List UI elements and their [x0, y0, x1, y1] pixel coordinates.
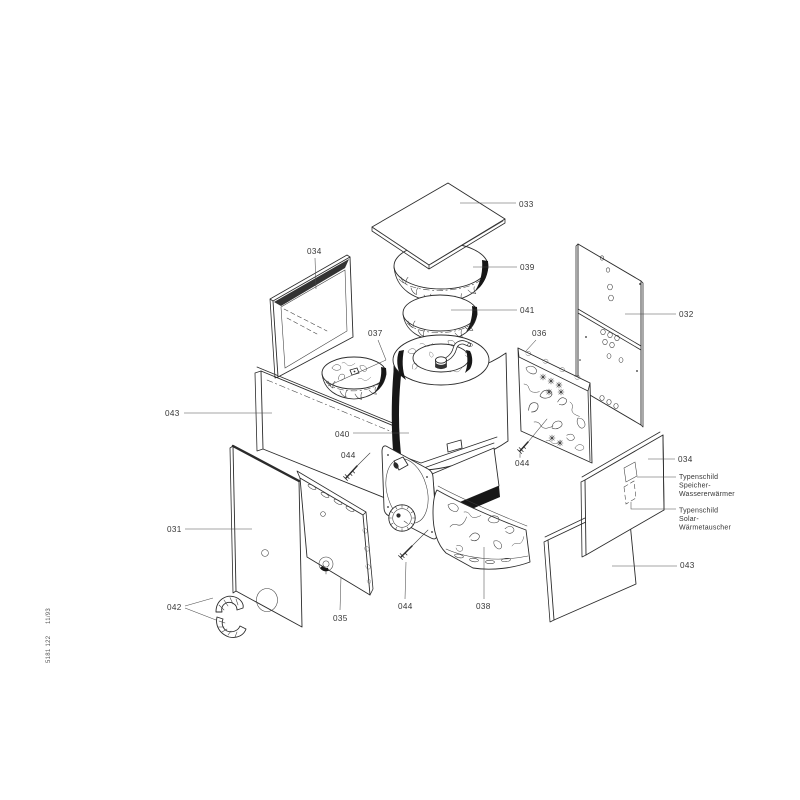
annotation-storage-line3: Wassererwärmer — [679, 491, 735, 498]
screw-044-bottom — [399, 530, 429, 560]
part-label-042: 042 — [167, 603, 182, 612]
part-label-035: 035 — [333, 614, 348, 623]
part-label-043-left: 043 — [165, 409, 180, 418]
part-label-031: 031 — [167, 525, 182, 534]
annotation-solar-line3: Wärmetauscher — [679, 525, 731, 532]
part-label-033: 033 — [519, 200, 534, 209]
annotation-solar-line2: Solar- — [679, 516, 699, 523]
annotation-solar-line1: Typenschild — [679, 508, 718, 515]
footer-doc-number: 5181 122 — [46, 635, 52, 663]
annotation-storage-line1: Typenschild — [679, 474, 718, 481]
part-label-039: 039 — [520, 263, 535, 272]
part-031-front-panel — [230, 446, 302, 627]
part-label-034-right: 034 — [678, 455, 693, 464]
part-label-032: 032 — [679, 310, 694, 319]
exploded-view-drawing: 033 034 039 041 037 036 032 043 040 044 … — [0, 0, 800, 800]
part-label-034-front: 034 — [307, 247, 322, 256]
part-label-044-left: 044 — [341, 451, 356, 460]
tank-hub — [436, 357, 447, 363]
part-035-insulation-panel — [297, 471, 373, 595]
part-label-036: 036 — [532, 329, 547, 338]
part-label-044-right: 044 — [515, 459, 530, 468]
flange-cap — [389, 505, 416, 532]
part-042-pipe-shells — [216, 596, 246, 637]
footer-date-code: 11/93 — [46, 608, 52, 624]
part-label-043-right: 043 — [680, 561, 695, 570]
nameplate-annotations: Typenschild Speicher- Wassererwärmer Typ… — [679, 474, 735, 532]
part-label-040: 040 — [335, 430, 350, 439]
part-label-041: 041 — [520, 306, 535, 315]
part-label-038: 038 — [476, 602, 491, 611]
part-037-insulation-disc — [322, 357, 386, 400]
part-label-044-bottom: 044 — [398, 602, 413, 611]
part-label-037: 037 — [368, 329, 383, 338]
footer-doc-codes: 11/93 5181 122 — [46, 608, 52, 663]
annotation-storage-line2: Speicher- — [679, 483, 711, 490]
parts-diagram-page: 033 034 039 041 037 036 032 043 040 044 … — [0, 0, 800, 800]
